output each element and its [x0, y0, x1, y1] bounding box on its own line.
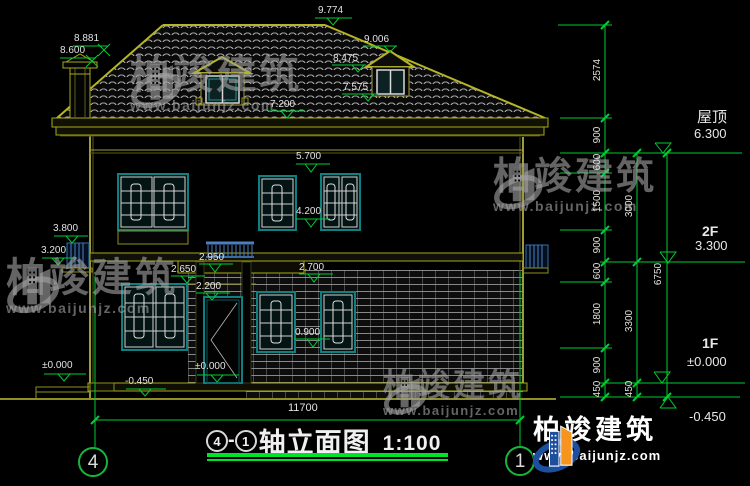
grid-bubble-4: 4 [78, 447, 108, 477]
watermark-logo-icon [493, 158, 547, 212]
title-axis-a: 4 [206, 430, 228, 452]
dim-stair-sill: 3.200 [41, 246, 66, 256]
dim-dormer-apex: 9.006 [364, 35, 389, 45]
floor-ground-elev: -0.450 [689, 410, 726, 423]
dim-chimney-top: 8.881 [74, 34, 99, 44]
dim-w1-head: 2.700 [299, 263, 324, 273]
brand-logo: 柏竣建筑 www.baijunjz.com [533, 417, 661, 463]
watermark-logo-icon [130, 55, 186, 111]
title-separator: - [228, 429, 235, 451]
building-linework [0, 0, 750, 486]
dim-door-head: 2.200 [196, 282, 221, 292]
watermark-logo-icon [383, 369, 431, 417]
watermark-bottom: 柏竣建筑 www.baijunjz.com [383, 369, 523, 417]
floor-roof-elev: 6.300 [694, 127, 727, 140]
dim-stair-head: 3.800 [53, 224, 78, 234]
dim-entry-level: ±0.000 [42, 361, 73, 371]
chain-450a: 450 [593, 369, 603, 409]
elevation-drawing-canvas: 柏竣建筑 www.baijunjz.com 柏竣建筑 www.baijunjz.… [0, 0, 750, 486]
window-2f-middle [259, 176, 296, 230]
floor-roof-name: 屋顶 [697, 110, 727, 125]
floor-2f-elev: 3.300 [695, 239, 728, 252]
dim-ridge: 9.774 [318, 6, 343, 16]
eave-fascia [52, 118, 548, 136]
dormer-right [366, 51, 414, 96]
chain-1800: 1800 [593, 294, 603, 334]
dim-total-width: 11700 [288, 403, 318, 414]
chain-3300: 3300 [625, 301, 635, 341]
floor-2f-name: 2F [702, 224, 718, 238]
dim-porch: 2.650 [171, 265, 196, 275]
dim-w2-sill: 4.200 [296, 207, 321, 217]
dim-chimney-cap: 8.600 [60, 46, 85, 56]
dim-w2-head: 5.700 [296, 152, 321, 162]
window-1f-right [321, 292, 355, 352]
window-1f-middle [257, 292, 295, 352]
floor-1f-name: 1F [702, 336, 718, 350]
dim-door-level: ±0.000 [195, 362, 226, 372]
side-railing [523, 245, 548, 273]
watermark-logo-icon [6, 258, 64, 316]
chain-450b: 450 [625, 369, 635, 409]
chain-3000: 3000 [625, 186, 635, 226]
watermark-left: 柏竣建筑 www.baijunjz.com [6, 258, 178, 315]
chain-6750: 6750 [654, 254, 664, 294]
title-scale: 1:100 [383, 432, 442, 455]
grid-bubble-1: 1 [505, 446, 535, 476]
chain-1500: 1500 [593, 181, 603, 221]
title-underline-thin [207, 459, 448, 461]
dim-w1-sill: 0.900 [295, 328, 320, 338]
window-2f-right [321, 174, 360, 230]
brand-logo-icon [533, 417, 585, 477]
chain-600a: 600 [593, 142, 603, 182]
chain-600b: 600 [593, 251, 603, 291]
floor-1f-elev: ±0.000 [687, 355, 727, 368]
dim-ground-level: -0.450 [125, 377, 153, 387]
dim-eave: 7.200 [270, 100, 295, 110]
title-underline-thick [207, 453, 448, 457]
window-2f-left [118, 174, 188, 244]
dim-dormer-eave: 8.475 [333, 54, 358, 64]
dim-dormer-sill: 7.575 [343, 83, 368, 93]
chain-2574: 2574 [593, 50, 603, 90]
dim-balcony: 2.950 [199, 253, 224, 263]
title-axis-b: 1 [235, 430, 257, 452]
